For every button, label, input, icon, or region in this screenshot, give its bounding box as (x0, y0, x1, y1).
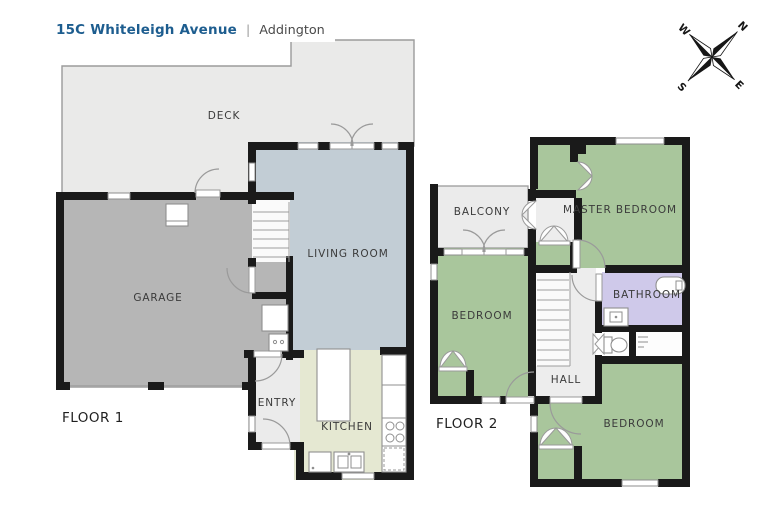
address-text: 15C Whiteleigh Avenue (56, 22, 237, 38)
dishwasher-icon (309, 452, 331, 472)
floor1-plan: DECK GARAGE LIVING ROOM ENTRY KITCHEN FL… (40, 6, 414, 480)
plan-title: 15C Whiteleigh Avenue | Addington (56, 20, 335, 42)
floor1-label: FLOOR 1 (62, 410, 124, 426)
compass-west-label: W (675, 22, 692, 39)
bedroom-right-room (602, 360, 688, 406)
toilet-icon (604, 337, 627, 353)
kitchen-counter (382, 355, 406, 472)
bathroom-sink-icon (604, 308, 628, 326)
living-room-label: LIVING ROOM (307, 248, 388, 260)
laundry-tub-icon (262, 305, 288, 331)
compass-rose: N E S W (646, 0, 768, 122)
balcony-label: BALCONY (454, 206, 510, 218)
compass-east-label: E (732, 79, 746, 93)
kitchen-island (317, 349, 350, 421)
floor2-label: FLOOR 2 (436, 416, 498, 432)
water-heater-icon (166, 204, 188, 226)
master-bedroom-label: MASTER BEDROOM (563, 204, 677, 216)
washer-icon (269, 334, 288, 351)
suburb-text: Addington (259, 23, 325, 38)
hall-label: HALL (551, 374, 581, 386)
bedroom-left-label: BEDROOM (451, 310, 512, 322)
sink-icon (334, 452, 364, 472)
compass-south-label: S (675, 80, 689, 94)
bedroom-right-label: BEDROOM (603, 418, 664, 430)
kitchen-label: KITCHEN (321, 421, 373, 433)
entry-label: ENTRY (258, 397, 296, 409)
title-separator: | (246, 22, 250, 37)
floor2-plan: BALCONY MASTER BEDROOM BEDROOM BATHROOM … (430, 137, 690, 487)
bedroom-right-room (534, 402, 688, 480)
floorplan-drawing: DECK GARAGE LIVING ROOM ENTRY KITCHEN FL… (0, 0, 768, 512)
bathroom-label: BATHROOM (613, 289, 681, 301)
bedroom-left-room (436, 248, 528, 400)
garage-label: GARAGE (133, 292, 182, 304)
deck-label: DECK (208, 110, 241, 122)
